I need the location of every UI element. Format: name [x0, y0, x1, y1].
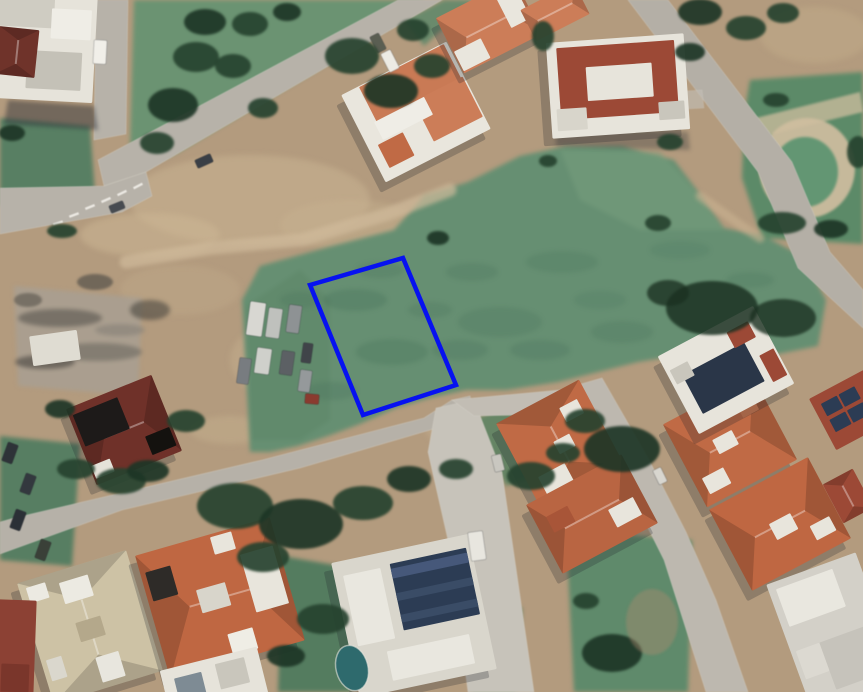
tree [546, 443, 580, 463]
tree [645, 215, 671, 231]
tree [0, 125, 25, 141]
vehicle [254, 347, 272, 375]
tree [565, 409, 605, 433]
tree [758, 212, 806, 234]
estate-red-courtyard [537, 33, 691, 146]
tree [414, 54, 450, 78]
tree [325, 38, 379, 74]
tree [77, 274, 113, 290]
satellite-view [0, 0, 863, 692]
field-texture [650, 241, 710, 259]
field-texture [574, 291, 626, 309]
tree [248, 98, 278, 118]
tree [173, 42, 219, 72]
tree [259, 499, 343, 549]
tree [237, 542, 289, 572]
field-texture [446, 263, 498, 281]
tree [47, 224, 77, 238]
building-detail [0, 664, 29, 692]
tree [397, 19, 429, 41]
tree [573, 593, 599, 609]
tree [45, 400, 75, 418]
tree [584, 426, 660, 472]
tree [647, 280, 689, 306]
tree [267, 645, 305, 667]
building-detail [658, 100, 685, 120]
field-texture [526, 251, 598, 273]
tree [427, 231, 449, 245]
tree [814, 220, 848, 238]
tree [532, 21, 554, 51]
tree [657, 134, 683, 150]
tree [626, 589, 678, 655]
tree [184, 9, 226, 35]
building-detail [586, 63, 654, 102]
tree [767, 3, 799, 23]
tree [140, 132, 174, 154]
tree [57, 459, 95, 479]
tree [167, 410, 205, 432]
building-maroon-corner [0, 26, 39, 78]
tree [507, 462, 555, 490]
tree [750, 299, 816, 337]
building-detail [51, 8, 93, 40]
tree [678, 0, 722, 25]
tree [14, 293, 42, 307]
tree [297, 604, 349, 634]
rubble-streak [130, 300, 170, 320]
field-texture [591, 321, 653, 343]
field-texture [323, 289, 387, 311]
field-texture [458, 307, 542, 337]
tree [539, 155, 557, 167]
tree [148, 88, 198, 122]
tree [387, 466, 431, 492]
building-detail [0, 0, 55, 28]
tree [127, 460, 169, 482]
building-detail [556, 107, 587, 131]
tree [364, 74, 418, 108]
courtyard-brick [0, 599, 37, 692]
vehicle [305, 393, 320, 404]
rubble-streak [95, 324, 145, 336]
field-texture [408, 302, 452, 318]
tree [763, 93, 789, 107]
field-texture [510, 340, 570, 360]
road-vertical-top-left [94, 0, 128, 140]
rubble-streak [18, 309, 102, 327]
tree [726, 16, 766, 40]
tree [439, 459, 473, 479]
field-texture [356, 339, 428, 365]
tree [215, 54, 251, 78]
tree [675, 43, 705, 61]
satellite-map-canvas[interactable] [0, 0, 863, 692]
tree [232, 12, 268, 36]
vehicle [93, 40, 107, 65]
tree [333, 486, 393, 520]
tree [273, 3, 301, 21]
